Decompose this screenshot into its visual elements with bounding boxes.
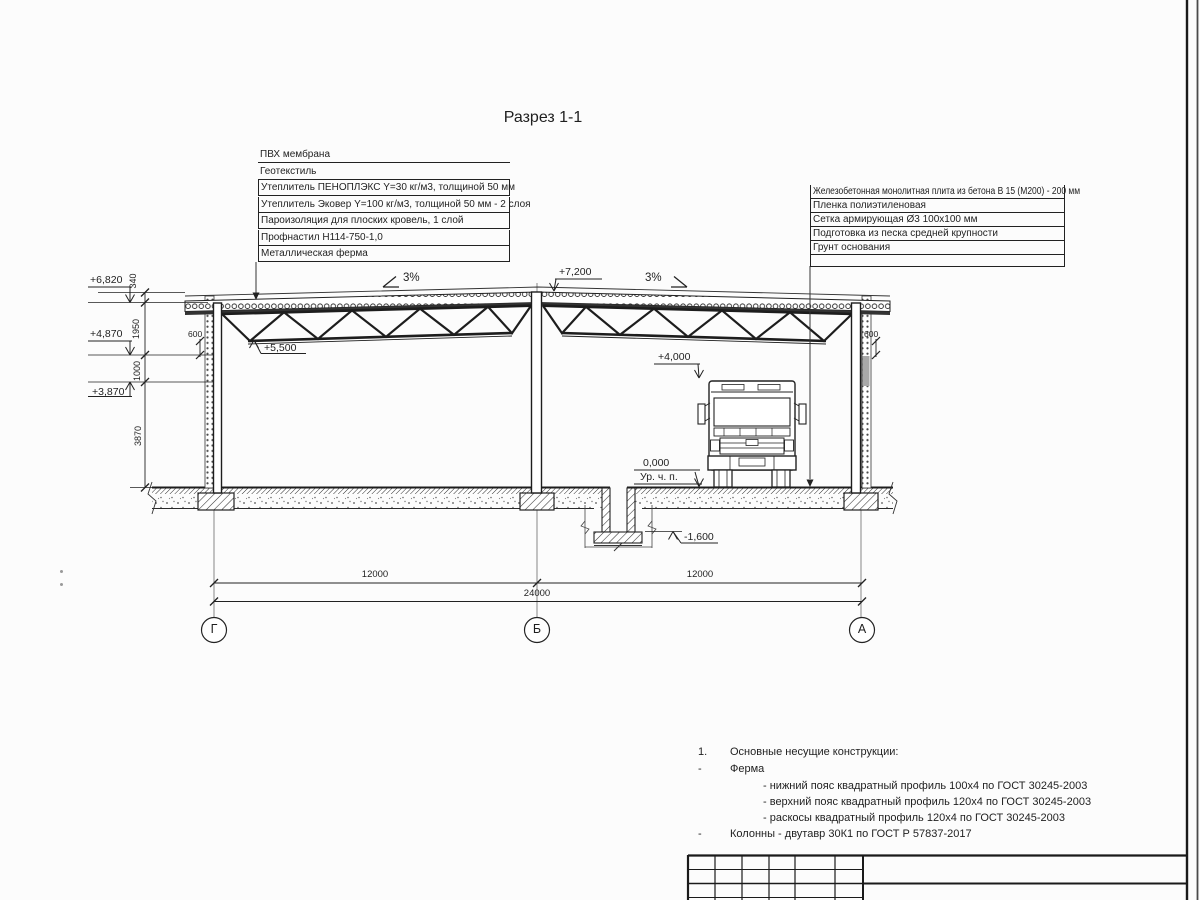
wall-panel-shade [863, 356, 870, 386]
column-center [532, 292, 542, 493]
column-right [852, 303, 861, 493]
elevation-label-pit: -1,600 [684, 531, 714, 543]
floor-level-caption: Ур. ч. п. [640, 471, 678, 483]
section-drawing [0, 0, 1200, 900]
roof-layer-row: ПВХ мембрана [258, 147, 510, 163]
roof-layer-row: Геотекстиль [258, 164, 510, 180]
dim-label-340: 340 [128, 259, 140, 303]
page-title: Разрез 1-1 [468, 109, 618, 127]
floor-layer-row: Железобетонная монолитная плита из бетон… [810, 185, 1065, 199]
elevation-label-wall: +3,870 [92, 386, 124, 398]
note-number: 1. [698, 746, 707, 759]
elevation-label-eave: +6,820 [90, 274, 122, 286]
dim-label-span-left: 12000 [345, 570, 405, 581]
elevation-label-ridge: +7,200 [559, 266, 591, 278]
note-item: - верхний пояс квадратный профиль 120х4 … [763, 796, 1091, 809]
drawing-sheet: Разрез 1-1 ПВХ мембрана Геотекстиль Утеп… [0, 0, 1200, 900]
note-truss-label: Ферма [730, 763, 764, 776]
slope-label-right: 3% [645, 272, 662, 285]
truck [698, 381, 806, 487]
elevation-label-floor: 0,000 [643, 457, 669, 469]
roof-layer-row: Металлическая ферма [258, 246, 510, 262]
roof-layer-row: Пароизоляция для плоских кровель, 1 слой [258, 213, 510, 229]
note-item: - раскосы квадратный профиль 120х4 по ГО… [763, 812, 1065, 825]
axis-label-right: А [850, 622, 874, 636]
truck-wheel-left [714, 470, 732, 487]
axis-label-left: Г [202, 622, 226, 636]
elevation-label-truss-bottom: +5,500 [264, 342, 296, 354]
truck-mirror-left [698, 404, 705, 424]
scan-speck [60, 583, 63, 586]
wall-panel-left [205, 296, 214, 488]
roof-layer-row: Утеплитель Эковер Y=100 кг/м3, толщиной … [258, 197, 510, 213]
dim-label-600-left: 600 [188, 330, 202, 340]
title-block [688, 855, 1187, 900]
truck-mirror-right [799, 404, 806, 424]
note-heading: Основные несущие конструкции: [730, 746, 898, 759]
note-dash: - [698, 763, 702, 776]
dim-label-600-right: 600 [864, 330, 878, 340]
roof-layer-row: Утеплитель ПЕНОПЛЭКС Y=30 кг/м3, толщино… [258, 180, 510, 196]
floor-layer-row: Пленка полиэтиленовая [810, 199, 1065, 213]
roof-layer-row: Профнастил Н114-750-1,0 [258, 230, 510, 246]
note-dash: - [698, 828, 702, 841]
dim-label-total: 24000 [507, 589, 567, 600]
dim-label-3870: 3870 [133, 414, 145, 458]
dim-label-span-right: 12000 [670, 570, 730, 581]
floor-layer-row-empty [810, 255, 1065, 267]
wall-panel-right [862, 296, 871, 488]
dim-label-1000: 1000 [132, 349, 144, 393]
axis-label-middle: Б [525, 622, 549, 636]
elevation-label-truck: +4,000 [658, 351, 690, 363]
dim-label-1950: 1950 [131, 307, 143, 351]
note-columns-label: Колонны - двутавр 30К1 по ГОСТ Р 57837-2… [730, 828, 972, 841]
note-item: - нижний пояс квадратный профиль 100х4 п… [763, 780, 1087, 793]
column-left [214, 303, 222, 493]
slope-label-left: 3% [403, 272, 420, 285]
scan-speck [60, 570, 63, 573]
floor-layer-row: Подготовка из песка средней крупности [810, 227, 1065, 241]
floor-layer-row: Грунт основания [810, 241, 1065, 255]
floor-layer-text: Железобетонная монолитная плита из бетон… [813, 185, 1080, 199]
slope-symbols [383, 277, 687, 288]
floor-layer-row: Сетка армирующая Ø3 100х100 мм [810, 213, 1065, 227]
elevation-label-bearing: +4,870 [90, 328, 122, 340]
truck-wheel-right [772, 470, 790, 487]
sheet-frame [1187, 0, 1198, 900]
